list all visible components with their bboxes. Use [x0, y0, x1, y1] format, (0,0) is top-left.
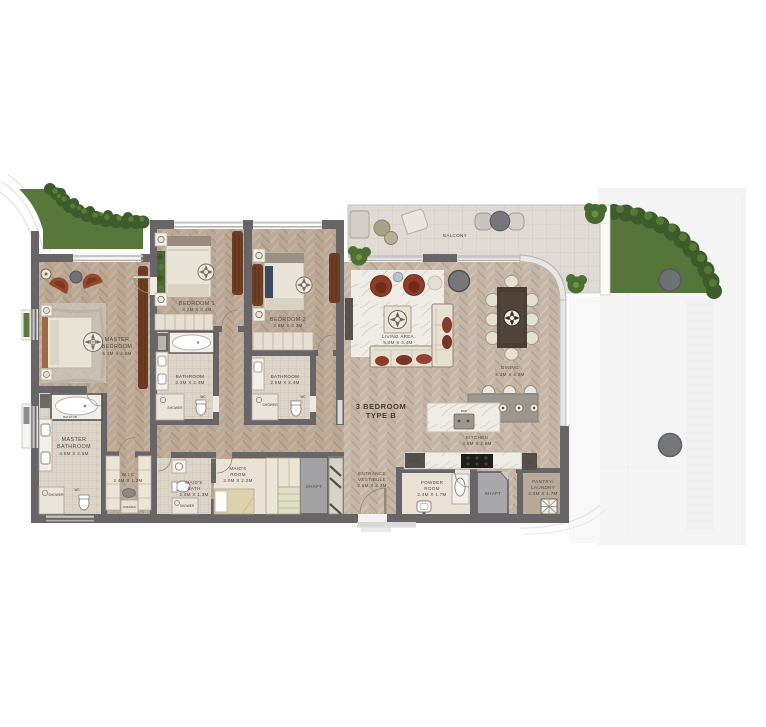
svg-text:2.4M X 1.7M: 2.4M X 1.7M	[417, 492, 446, 497]
svg-text:W.I.C: W.I.C	[122, 472, 135, 477]
svg-text:BATHROOM: BATHROOM	[176, 374, 205, 379]
svg-text:WC: WC	[200, 395, 206, 399]
svg-text:MASTER: MASTER	[105, 337, 130, 343]
svg-text:2.4M X 1.3M: 2.4M X 1.3M	[179, 492, 208, 497]
svg-text:3.3M X 2.4M: 3.3M X 2.4M	[175, 380, 204, 385]
svg-text:TYPE B: TYPE B	[366, 411, 396, 420]
svg-text:BATHTUB: BATHTUB	[63, 415, 77, 419]
svg-text:3 BEDROOM: 3 BEDROOM	[356, 402, 407, 411]
svg-text:SHOWER: SHOWER	[48, 493, 64, 497]
svg-text:BAR: BAR	[461, 409, 468, 413]
svg-text:POWDER: POWDER	[421, 480, 444, 485]
svg-text:ENTRANCE: ENTRANCE	[358, 471, 386, 476]
svg-text:OVEN: OVEN	[526, 460, 534, 464]
svg-text:BEDROOM: BEDROOM	[102, 344, 133, 350]
svg-text:KITCHEN: KITCHEN	[466, 435, 488, 440]
svg-text:LAUNDRY: LAUNDRY	[531, 485, 555, 490]
svg-text:5.3M X 4.2M: 5.3M X 4.2M	[495, 372, 524, 377]
svg-text:BALCONY: BALCONY	[443, 233, 467, 238]
svg-text:BATHROOM: BATHROOM	[57, 444, 91, 450]
svg-text:DRESSER: DRESSER	[123, 505, 136, 509]
svg-text:DINING: DINING	[501, 365, 519, 370]
svg-text:5.3M X 4.5M: 5.3M X 4.5M	[102, 351, 131, 356]
svg-text:SHAFT: SHAFT	[306, 484, 323, 489]
svg-text:MASTER: MASTER	[62, 437, 87, 443]
svg-text:2.6M X 2.4M: 2.6M X 2.4M	[270, 380, 299, 385]
svg-text:4.6M X 2.5M: 4.6M X 2.5M	[59, 451, 88, 456]
svg-text:WC: WC	[300, 395, 306, 399]
svg-text:SHOWER: SHOWER	[180, 504, 195, 508]
svg-text:5.3M X 4.4M: 5.3M X 4.4M	[383, 340, 412, 345]
svg-text:MAID'S: MAID'S	[229, 466, 246, 471]
svg-text:VESTIBULE: VESTIBULE	[358, 477, 386, 482]
svg-text:PANTRY/: PANTRY/	[532, 479, 554, 484]
svg-text:SHAFT: SHAFT	[485, 491, 502, 496]
svg-text:ROOM: ROOM	[230, 472, 246, 477]
svg-text:4.2M X 3.4M: 4.2M X 3.4M	[182, 307, 211, 312]
svg-text:2.4M X 1.2M: 2.4M X 1.2M	[113, 478, 142, 483]
svg-text:FRIDGE: FRIDGE	[409, 459, 421, 463]
svg-text:2.0M X 1.7M: 2.0M X 1.7M	[528, 491, 557, 496]
svg-text:BATHROOM: BATHROOM	[271, 374, 300, 379]
svg-text:2.5M X 2.3M: 2.5M X 2.3M	[357, 483, 386, 488]
svg-text:4.5M X 2.6M: 4.5M X 2.6M	[462, 441, 491, 446]
svg-text:MAID'S: MAID'S	[185, 480, 202, 485]
svg-text:ROOM: ROOM	[424, 486, 440, 491]
svg-text:3.6M X 4.3M: 3.6M X 4.3M	[273, 323, 302, 328]
svg-text:SHOWER: SHOWER	[167, 406, 183, 410]
svg-text:LIVING AREA: LIVING AREA	[382, 334, 415, 339]
svg-text:WC: WC	[74, 488, 80, 492]
svg-text:SHOWER: SHOWER	[262, 403, 278, 407]
svg-text:3.0M X 2.2M: 3.0M X 2.2M	[223, 478, 252, 483]
svg-text:BATH: BATH	[187, 486, 200, 491]
